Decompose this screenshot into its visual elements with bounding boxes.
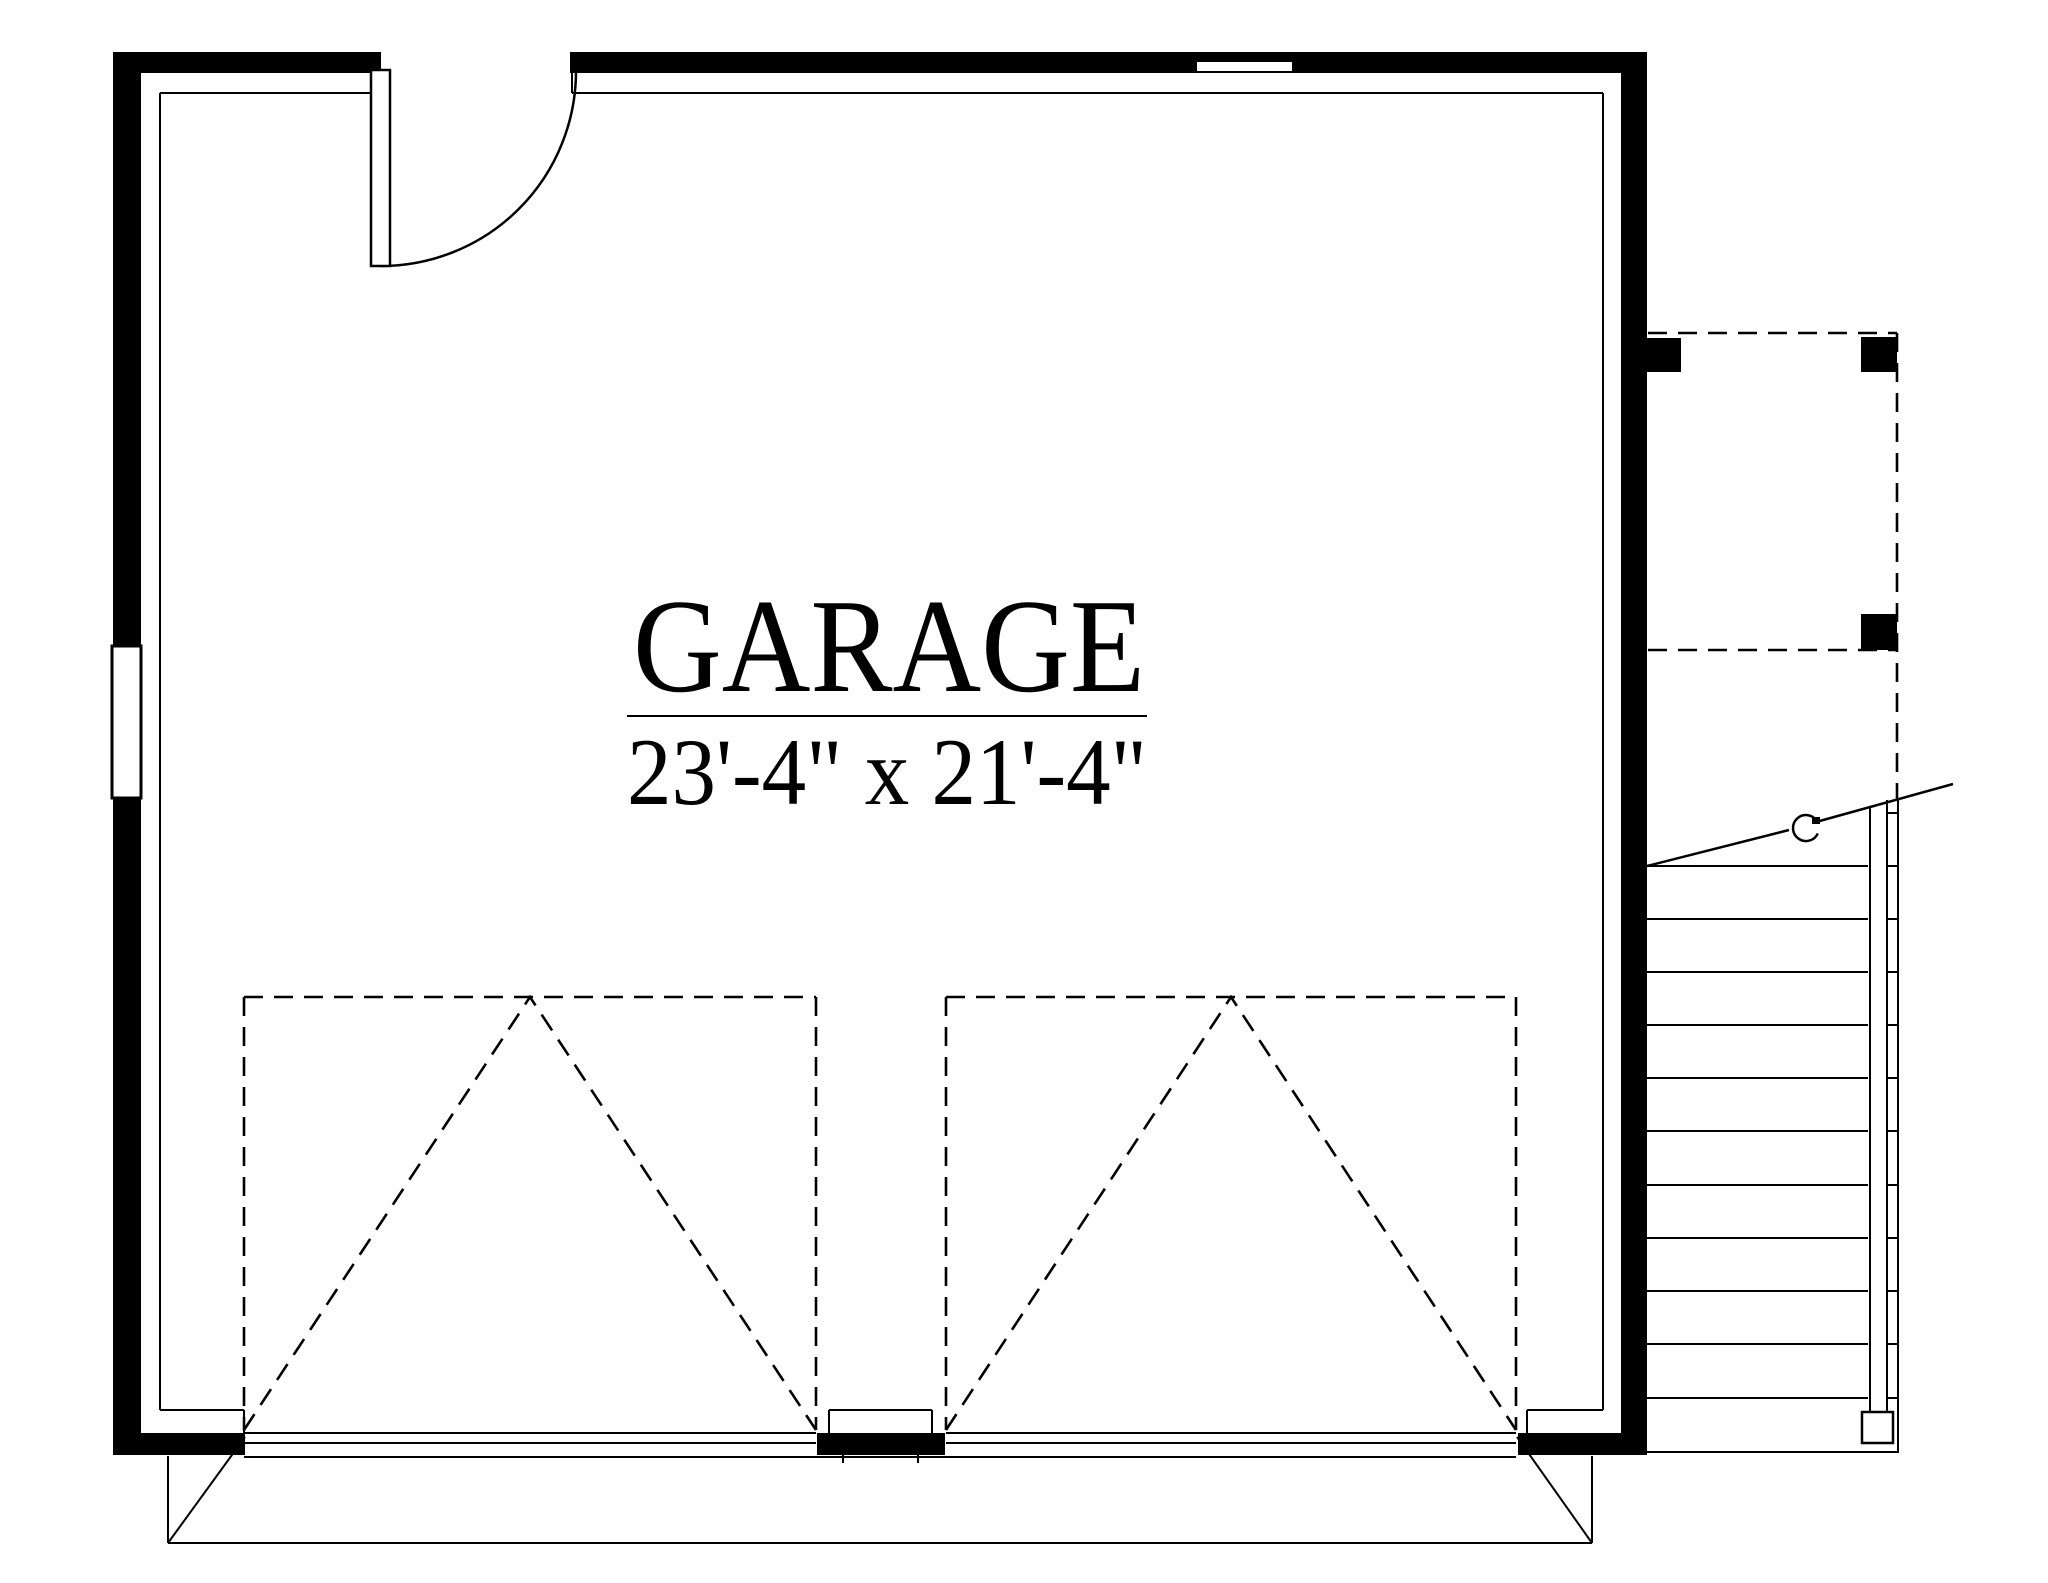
entry-door-leaf — [371, 70, 390, 266]
left-wall-upper-segment — [113, 52, 141, 647]
left-wall-lower-segment — [113, 797, 141, 1455]
bottom-wall-right-segment — [1518, 1433, 1647, 1455]
top-wall-right-segment — [570, 52, 1647, 73]
room-annotation: GARAGE 23'-4" x 21'-4" — [627, 572, 1147, 825]
right-wall — [1621, 52, 1647, 1455]
floor-plan-page: GARAGE 23'-4" x 21'-4" — [0, 0, 2048, 1583]
bottom-wall-left-segment — [113, 1433, 245, 1455]
left-wall-window — [112, 646, 141, 798]
top-wall-header-notch — [1197, 62, 1292, 71]
deck-post-bottom-right — [1861, 614, 1897, 650]
floor-plan-canvas: GARAGE 23'-4" x 21'-4" — [0, 0, 2048, 1583]
deck-post-top-left — [1647, 338, 1681, 372]
stair-break-loop-dot — [1812, 817, 1820, 824]
top-wall-left-segment — [113, 52, 381, 73]
deck-post-top-right — [1861, 337, 1897, 372]
bottom-wall-center-pier — [817, 1433, 945, 1455]
room-dimensions-label: 23'-4" x 21'-4" — [627, 719, 1147, 825]
newel-post — [1862, 1412, 1893, 1443]
room-label: GARAGE — [633, 572, 1145, 720]
